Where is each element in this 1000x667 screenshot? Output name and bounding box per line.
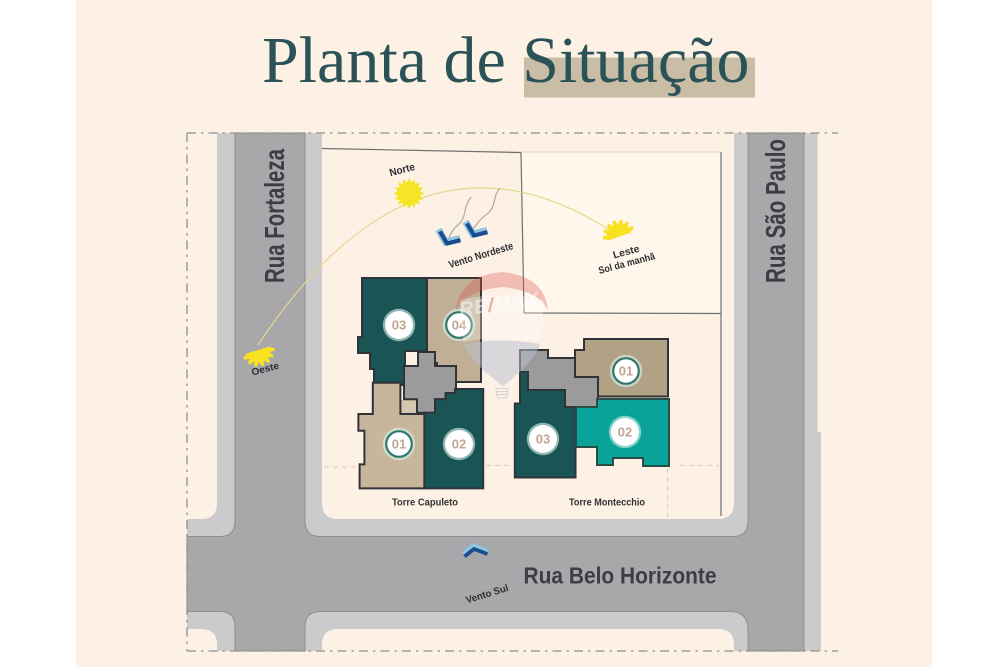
svg-text:02: 02	[452, 437, 466, 452]
svg-text:Rua São Paulo: Rua São Paulo	[760, 139, 791, 283]
svg-text:03: 03	[536, 432, 550, 447]
svg-text:Torre Capuleto: Torre Capuleto	[392, 498, 458, 509]
svg-text:Planta de Situação: Planta de Situação	[262, 24, 750, 97]
svg-text:Torre Montecchio: Torre Montecchio	[569, 498, 645, 509]
svg-text:Rua Fortaleza: Rua Fortaleza	[259, 149, 290, 283]
svg-text:03: 03	[392, 318, 406, 333]
svg-text:Rua Belo Horizonte: Rua Belo Horizonte	[524, 563, 717, 589]
svg-text:02: 02	[618, 425, 632, 440]
svg-text:01: 01	[619, 364, 633, 379]
svg-text:01: 01	[392, 437, 406, 452]
